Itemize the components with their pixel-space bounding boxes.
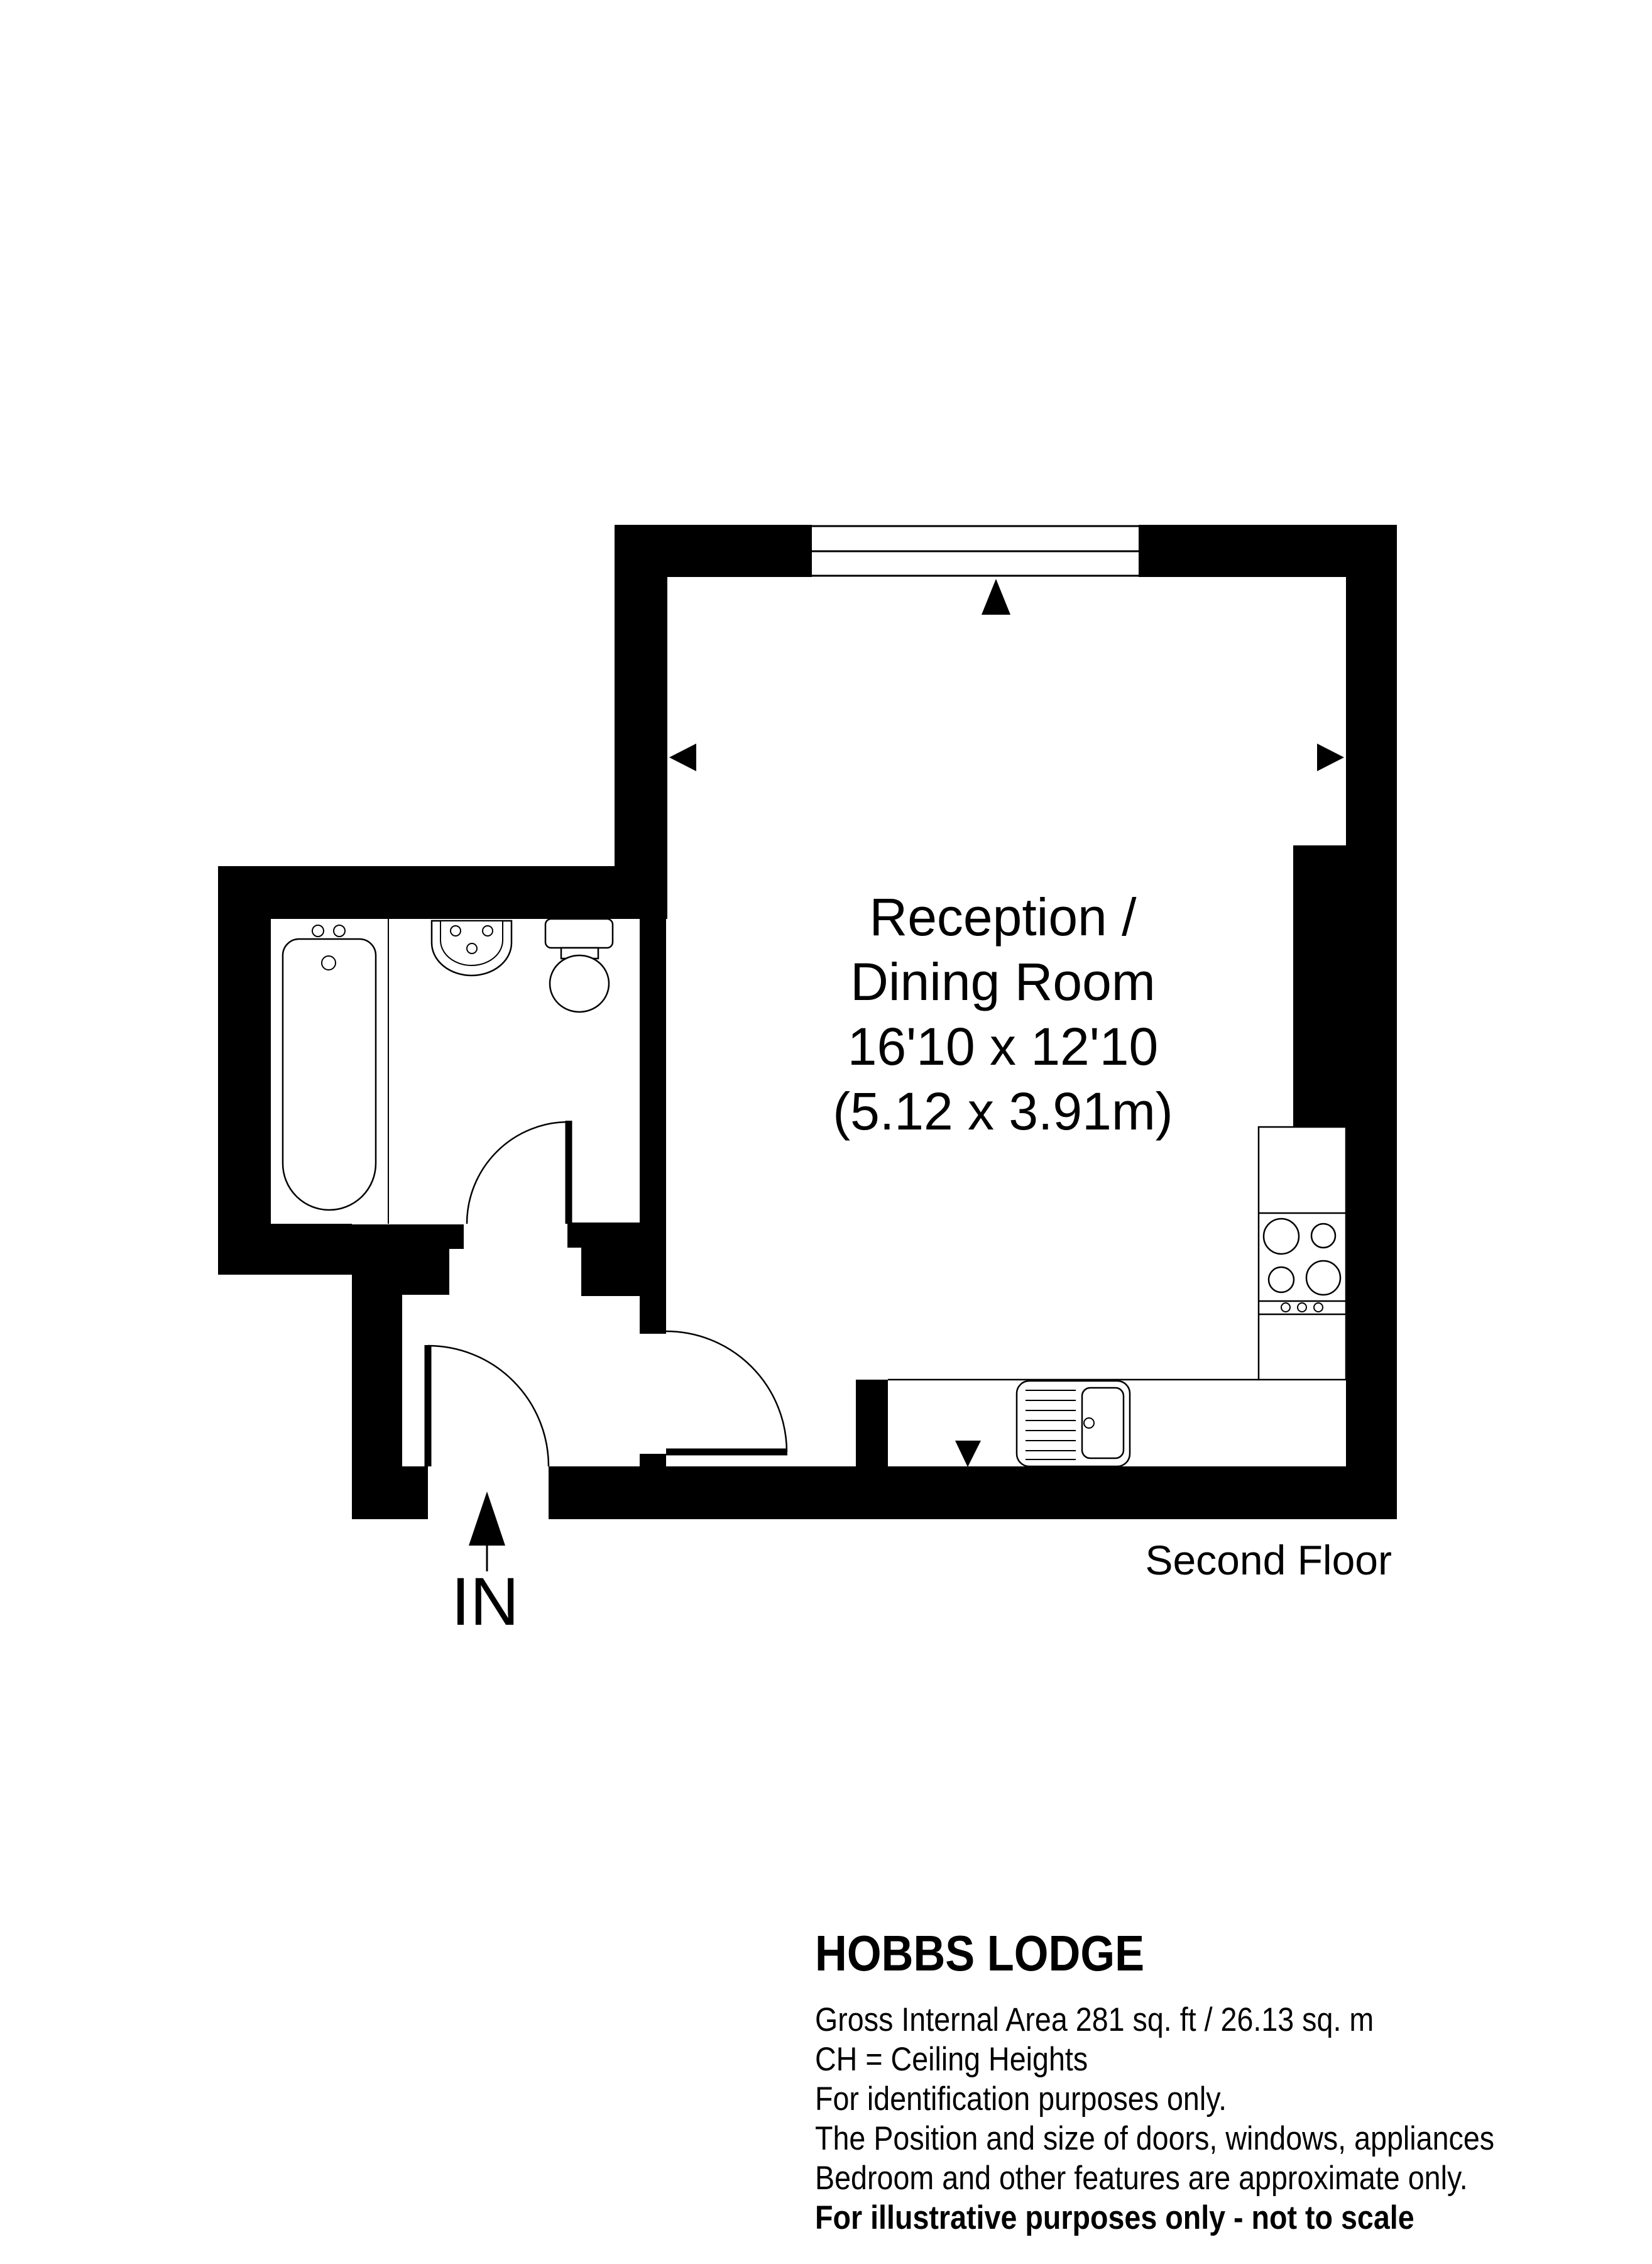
basin-drain-icon: [467, 943, 477, 953]
footer-disclaimer: HOBBS LODGE Gross Internal Area 281 sq. …: [815, 1925, 1534, 2238]
wall-left-upper: [615, 525, 667, 919]
wall-hall-left: [352, 1295, 402, 1466]
arrow-up-icon: [982, 579, 1010, 615]
arrow-down-icon: [955, 1441, 981, 1467]
gross-internal-area: Gross Internal Area 281 sq. ft / 26.13 s…: [815, 2000, 1534, 2040]
bathtub-tap-icon: [312, 925, 324, 937]
floorplan-page: Reception / Dining Room 16'10 x 12'10 (5…: [0, 0, 1652, 2264]
wall-counter-stub: [856, 1380, 888, 1466]
wall-bathroom-top: [218, 866, 667, 919]
room-name-line2: Dining Room: [850, 952, 1156, 1011]
wall-bottom-left-segment: [352, 1466, 428, 1519]
wall-right: [1346, 525, 1397, 1519]
room-dimensions-metric: (5.12 x 3.91m): [833, 1082, 1173, 1141]
position-size-note: The Position and size of doors, windows,…: [815, 2119, 1534, 2158]
entry-arrow-icon: [469, 1492, 505, 1546]
window: [812, 526, 1139, 576]
arrow-left-icon: [669, 744, 696, 771]
walls: [218, 525, 1397, 1519]
bathtub-tap-icon: [334, 925, 345, 937]
wall-bathroom-bottom-stub: [567, 1223, 640, 1248]
wall-bottom-right-segment: [549, 1466, 1397, 1519]
kitchen-tall-unit: [1259, 1127, 1346, 1380]
wall-bathroom-left: [218, 866, 271, 1275]
basin-tap-icon: [483, 926, 493, 936]
toilet-cistern: [545, 919, 613, 948]
room-dimensions-imperial: 16'10 x 12'10: [848, 1017, 1158, 1076]
approximate-note: Bedroom and other features are approxima…: [815, 2158, 1534, 2198]
wall-bathroom-bottom-left: [218, 1224, 352, 1275]
wall-bathroom-bottom-band: [352, 1224, 464, 1249]
floor-name-label: Second Floor: [1145, 1537, 1392, 1583]
toilet-bowl: [550, 955, 609, 1012]
basin-tap-icon: [451, 926, 461, 936]
bathroom-door-arc: [467, 1122, 569, 1224]
room-name-line1: Reception /: [870, 887, 1137, 947]
ceiling-heights-note: CH = Ceiling Heights: [815, 2040, 1534, 2079]
wall-hall-step-left: [352, 1249, 449, 1295]
identification-note: For identification purposes only.: [815, 2079, 1534, 2119]
kitchen: [888, 1127, 1346, 1466]
bathtub: [283, 939, 376, 1210]
bathroom-fixtures: [283, 919, 613, 1224]
wall-bottom-step: [640, 1454, 666, 1466]
wall-hall-room-divider: [640, 919, 666, 1334]
property-title: HOBBS LODGE: [815, 1925, 1534, 1982]
entry-door-arc: [428, 1346, 549, 1466]
arrow-right-icon: [1317, 744, 1344, 771]
wall-chimney-breast: [1293, 845, 1346, 1127]
not-to-scale-note: For illustrative purposes only - not to …: [815, 2198, 1534, 2238]
wall-hall-step-right: [581, 1248, 640, 1296]
reception-door-arc: [666, 1331, 787, 1452]
sink-tap-icon: [1084, 1418, 1094, 1428]
entry-arrow: [469, 1492, 505, 1571]
entry-in-label: IN: [451, 1563, 519, 1639]
bathtub-drain-icon: [322, 956, 336, 970]
